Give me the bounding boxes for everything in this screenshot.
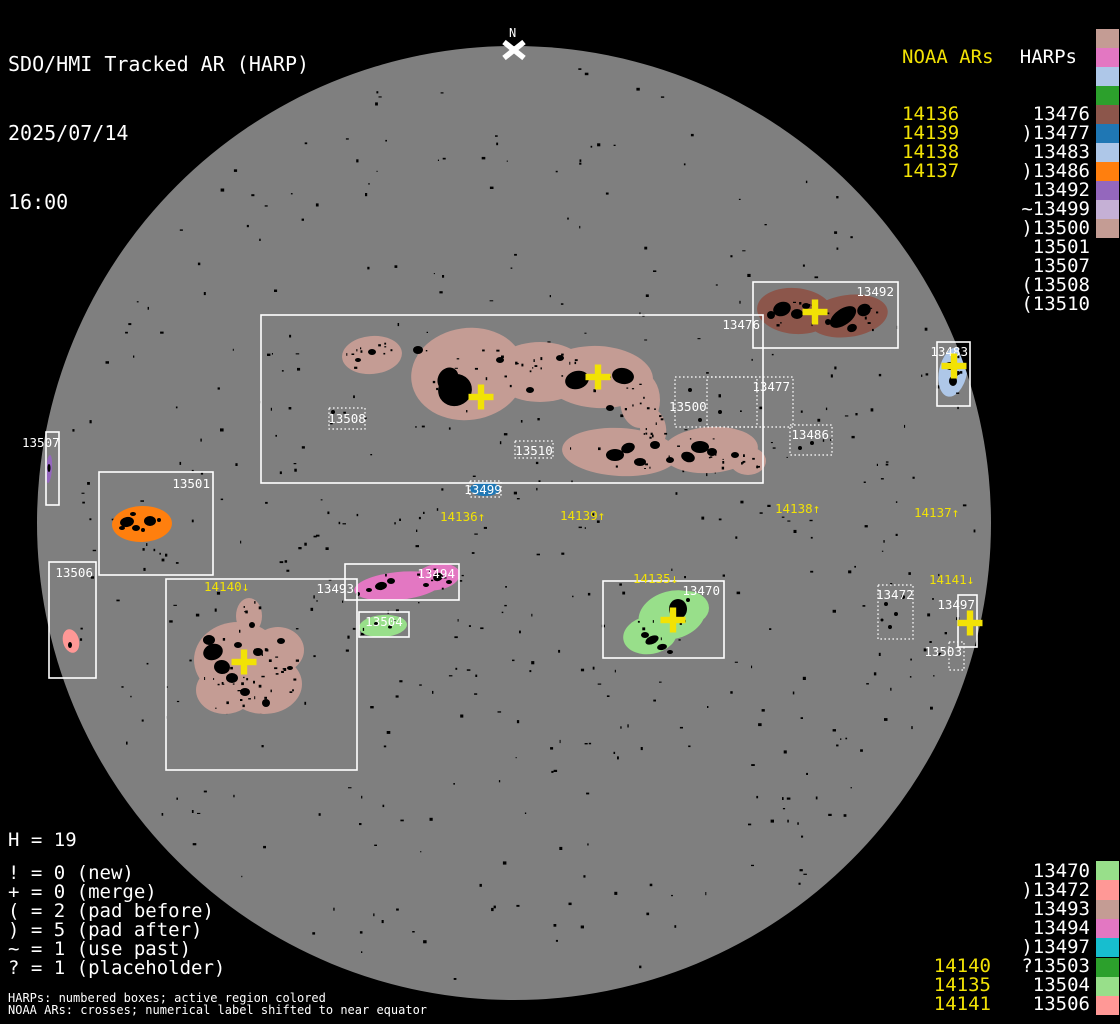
sunspot (48, 464, 51, 472)
harp-color-swatch (1096, 880, 1119, 899)
harp-total-count: H = 19 (8, 831, 77, 850)
legend-harps-top: HARPs 13476)1347713483)1348613492~13499)… (1000, 10, 1090, 314)
harp-label-13497: 13497 (937, 597, 975, 612)
harp-label-13483: 13483 (930, 344, 968, 359)
sunspot (641, 632, 649, 638)
harp-label-13504: 13504 (365, 614, 403, 629)
harp-label-13506: 13506 (55, 565, 93, 580)
sunspot (234, 642, 242, 648)
harp-label-13492: 13492 (856, 284, 894, 299)
sunspot (287, 666, 293, 670)
noaa-ar-number: 14137 (902, 162, 997, 181)
sunspot (606, 405, 614, 411)
sunspot (881, 619, 884, 622)
noaa-label: 14136↑ (440, 509, 485, 524)
harp-color-swatch (1096, 162, 1119, 181)
sunspot (130, 512, 136, 516)
harp-color-swatch (1096, 958, 1119, 977)
harp-color-swatch (1096, 143, 1119, 162)
harp-number: (13510 (1000, 295, 1090, 314)
sunspot (387, 578, 395, 584)
harp-label-13508: 13508 (328, 411, 366, 426)
harp-label-13500: 13500 (669, 399, 707, 414)
noaa-label: 14139↑ (560, 508, 605, 523)
harp-color-swatch (1096, 181, 1119, 200)
sunspot (119, 526, 125, 530)
harp-label-13493: 13493 (316, 581, 354, 596)
harp-color-swatch (1096, 105, 1119, 124)
sunspot (226, 673, 238, 683)
harp-label-13494: 13494 (417, 566, 455, 581)
harp-color-swatch (1096, 200, 1119, 219)
harp-color-swatch (1096, 67, 1119, 86)
harp-label-13503: 13503 (924, 644, 962, 659)
harp-number: 13506 (1010, 995, 1090, 1014)
harp-color-swatch (1096, 996, 1119, 1015)
noaa-label: 14140↓ (204, 579, 249, 594)
sunspot (413, 346, 423, 354)
sunspot (767, 311, 775, 319)
active-region-blob (730, 447, 766, 475)
sunspot (203, 635, 215, 645)
harp-label-13510: 13510 (515, 443, 553, 458)
sunspot (368, 349, 376, 355)
sunspot (132, 525, 140, 531)
north-label: N (509, 26, 516, 40)
sunspot (666, 457, 674, 463)
sunspot (262, 699, 270, 707)
harps-header: HARPs (1000, 48, 1090, 67)
noaa-label: 14135↓ (633, 571, 678, 586)
harp-color-swatch (1096, 219, 1119, 238)
harp-color-swatch (1096, 86, 1119, 105)
status-flag-line: ? = 1 (placeholder) (8, 959, 225, 978)
sunspot (650, 441, 660, 449)
sunspot (556, 355, 564, 361)
legend-noaa-ars: NOAA ARs 14136141391413814137 (902, 10, 997, 181)
sunspot (68, 642, 72, 648)
north-marker: N (504, 26, 524, 58)
noaa-ars-header: NOAA ARs (902, 48, 997, 67)
plot-date: 2025/07/14 (8, 122, 309, 145)
status-flag-legend: ! = 0 (new)+ = 0 (merge)( = 2 (pad befor… (8, 864, 225, 978)
harp-color-swatch (1096, 919, 1119, 938)
harp-color-swatch (1096, 900, 1119, 919)
sunspot (526, 387, 534, 393)
legend-harps-bottom: 13470)134721349313494)13497?135031350413… (1010, 862, 1090, 1014)
plot-title: SDO/HMI Tracked AR (HARP) (8, 53, 309, 76)
sunspot (157, 518, 161, 522)
title-block: SDO/HMI Tracked AR (HARP) 2025/07/14 16:… (8, 7, 309, 260)
sunspot (355, 358, 361, 362)
sunspot (894, 612, 898, 616)
sunspot (798, 446, 802, 450)
sunspot (249, 622, 255, 628)
sunspot (606, 449, 624, 461)
sunspot (277, 638, 285, 644)
harp-label-13470: 13470 (682, 583, 720, 598)
harp-color-swatch (1096, 977, 1119, 996)
sunspot (691, 441, 709, 453)
harp-label-13499: 13499 (464, 482, 502, 497)
sunspot (884, 602, 888, 606)
harp-color-swatch (1096, 124, 1119, 143)
sunspot (423, 583, 429, 587)
sunspot (686, 598, 690, 602)
harp-color-swatch (1096, 938, 1119, 957)
sunspot (141, 528, 145, 532)
harp-label-13476: 13476 (722, 317, 760, 332)
sunspot (698, 418, 702, 422)
sunspot (718, 410, 722, 414)
harp-label-13477: 13477 (752, 379, 790, 394)
harp-color-swatch (1096, 48, 1119, 67)
sunspot (888, 625, 892, 629)
harp-color-swatch (1096, 861, 1119, 880)
sunspot (688, 388, 692, 392)
noaa-label: 14137↑ (914, 505, 959, 520)
sunspot (802, 303, 810, 309)
solar-harp-plot: 1347613492134831347713500134861350813510… (0, 0, 1120, 1024)
noaa-ar-number: 14141 (933, 995, 991, 1014)
noaa-label: 14141↓ (929, 572, 974, 587)
footnote-noaa: NOAA ARs: crosses; numerical label shift… (8, 1004, 427, 1016)
harp-label-13472: 13472 (876, 587, 914, 602)
plot-time: 16:00 (8, 191, 309, 214)
sunspot (366, 588, 372, 592)
sunspot (825, 319, 831, 325)
harp-label-13507: 13507 (22, 435, 60, 450)
sunspot (667, 650, 673, 654)
sunspot (144, 516, 156, 526)
sunspot (634, 458, 646, 466)
legend-noaa-bottom: 141401413514141 (933, 862, 991, 1014)
harp-color-swatch (1096, 29, 1119, 48)
noaa-label: 14138↑ (775, 501, 820, 516)
harp-label-13501: 13501 (172, 476, 210, 491)
harp-label-13486: 13486 (791, 427, 829, 442)
sunspot (791, 309, 803, 319)
